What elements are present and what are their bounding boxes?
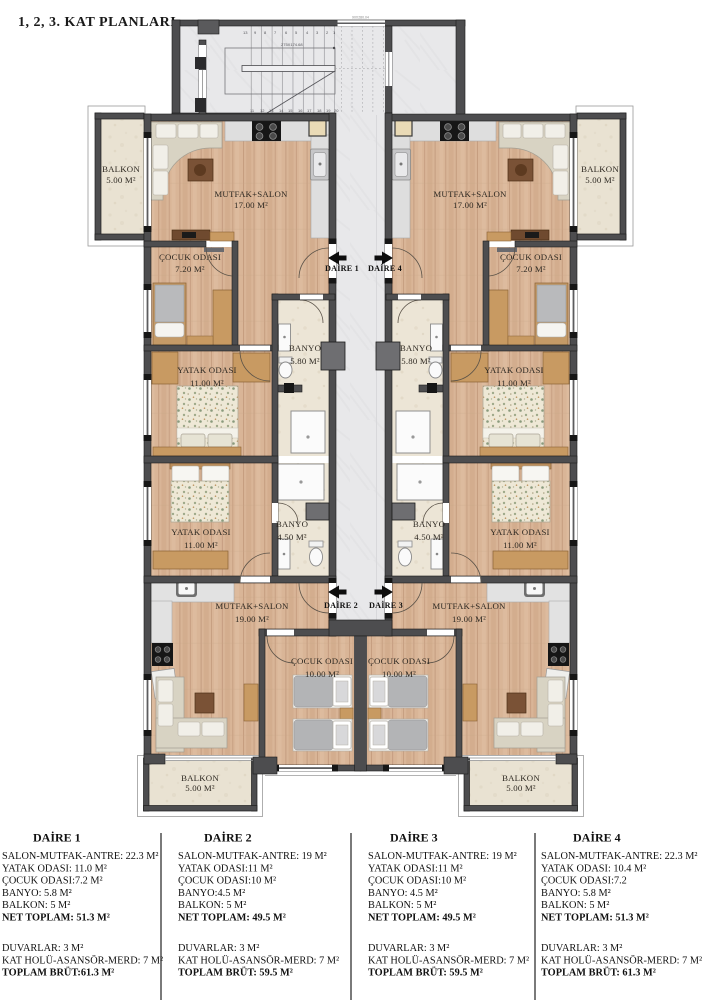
svg-text:13: 13 — [243, 30, 248, 35]
svg-text:90X280.04: 90X280.04 — [352, 16, 369, 20]
svg-text:TOPLAM BRÜT: 59.5 M²: TOPLAM BRÜT: 59.5 M² — [178, 966, 293, 979]
svg-text:ÇOCUK ODASI:7.2 M²: ÇOCUK ODASI:7.2 M² — [2, 876, 103, 887]
svg-text:DAİRE 2: DAİRE 2 — [204, 831, 252, 845]
svg-text:NET TOPLAM: 51.3 M²: NET TOPLAM: 51.3 M² — [2, 913, 110, 924]
svg-text:7.20 M²: 7.20 M² — [175, 264, 205, 274]
svg-text:11.00 M²: 11.00 M² — [503, 540, 537, 550]
svg-text:YATAK ODASI: 11.0 M²: YATAK ODASI: 11.0 M² — [2, 863, 107, 874]
svg-text:5.00 M²: 5.00 M² — [185, 783, 215, 793]
svg-text:ÇOCUK ODASI: ÇOCUK ODASI — [291, 656, 353, 666]
svg-text:DUVARLAR: 3 M²: DUVARLAR: 3 M² — [541, 943, 622, 954]
svg-text:SALON-MUTFAK-ANTRE: 19 M²: SALON-MUTFAK-ANTRE: 19 M² — [178, 851, 327, 862]
svg-text:DAİRE 4: DAİRE 4 — [368, 263, 402, 273]
svg-text:BANYO: BANYO — [400, 343, 432, 353]
svg-text:NET TOPLAM: 51.3 M²: NET TOPLAM: 51.3 M² — [541, 913, 649, 924]
svg-text:DAİRE 1: DAİRE 1 — [33, 831, 81, 845]
svg-text:16: 16 — [298, 108, 303, 113]
svg-text:MUTFAK+SALON: MUTFAK+SALON — [215, 601, 289, 611]
svg-text:BANYO: 5.8 M²: BANYO: 5.8 M² — [541, 888, 611, 899]
svg-text:BALKON: 5 M²: BALKON: 5 M² — [368, 900, 436, 911]
svg-text:TOPLAM BRÜT: 61.3 M²: TOPLAM BRÜT: 61.3 M² — [541, 966, 656, 979]
svg-text:DUVARLAR: 3 M²: DUVARLAR: 3 M² — [368, 943, 449, 954]
svg-text:YATAK ODASI:11 M²: YATAK ODASI:11 M² — [178, 863, 273, 874]
svg-text:SALON-MUTFAK-ANTRE: 22.3 M²: SALON-MUTFAK-ANTRE: 22.3 M² — [2, 851, 159, 862]
svg-text:TOPLAM BRÜT:61.3 M²: TOPLAM BRÜT:61.3 M² — [2, 966, 114, 979]
svg-text:17.00 M²: 17.00 M² — [453, 200, 487, 210]
svg-text:BANYO: BANYO — [413, 519, 445, 529]
svg-text:5.00 M²: 5.00 M² — [585, 175, 615, 185]
svg-text:5.80 M²: 5.80 M² — [290, 356, 320, 366]
svg-text:ÇOCUK ODASI:10 M²: ÇOCUK ODASI:10 M² — [368, 876, 466, 887]
svg-text:BALKON: 5 M²: BALKON: 5 M² — [178, 900, 246, 911]
svg-text:17: 17 — [307, 108, 312, 113]
svg-text:BALKON: 5 M²: BALKON: 5 M² — [541, 900, 609, 911]
svg-text:KAT HOLÜ-ASANSÖR-MERD: 7 M²: KAT HOLÜ-ASANSÖR-MERD: 7 M² — [178, 954, 339, 966]
svg-text:BALKON: BALKON — [502, 773, 540, 783]
svg-text:13: 13 — [269, 108, 274, 113]
svg-text:BANYO: 5.8 M²: BANYO: 5.8 M² — [2, 888, 72, 899]
svg-text:YATAK ODASI: YATAK ODASI — [484, 365, 543, 375]
svg-text:YATAK ODASI: YATAK ODASI — [177, 365, 236, 375]
svg-text:BALKON: BALKON — [181, 773, 219, 783]
svg-text:5.80 M²: 5.80 M² — [401, 356, 431, 366]
svg-text:7.20 M²: 7.20 M² — [516, 264, 546, 274]
svg-text:MUTFAK+SALON: MUTFAK+SALON — [433, 189, 507, 199]
svg-text:BANYO: BANYO — [276, 519, 308, 529]
svg-text:ÇOCUK ODASI:10 M²: ÇOCUK ODASI:10 M² — [178, 876, 276, 887]
svg-text:10.00 M²: 10.00 M² — [382, 669, 416, 679]
svg-text:SALON-MUTFAK-ANTRE: 19 M²: SALON-MUTFAK-ANTRE: 19 M² — [368, 851, 517, 862]
svg-text:MUTFAK+SALON: MUTFAK+SALON — [214, 189, 288, 199]
svg-text:ÇOCUK ODASI: ÇOCUK ODASI — [500, 252, 562, 262]
svg-text:18: 18 — [317, 108, 322, 113]
svg-text:ÇOCUK ODASI: ÇOCUK ODASI — [368, 656, 430, 666]
svg-text:YATAK ODASI: YATAK ODASI — [490, 527, 549, 537]
svg-text:BALKON: BALKON — [102, 164, 140, 174]
svg-text:KAT HOLÜ-ASANSÖR-MERD: 7 M²: KAT HOLÜ-ASANSÖR-MERD: 7 M² — [368, 954, 529, 966]
svg-text:275X174.68: 275X174.68 — [281, 42, 303, 47]
svg-text:11.00 M²: 11.00 M² — [190, 378, 224, 388]
svg-text:DAİRE 3: DAİRE 3 — [390, 831, 438, 845]
svg-text:DAİRE 1: DAİRE 1 — [325, 263, 359, 273]
svg-text:MUTFAK+SALON: MUTFAK+SALON — [432, 601, 506, 611]
svg-text:DAİRE 3: DAİRE 3 — [369, 600, 403, 610]
svg-text:ÇOCUK ODASI: ÇOCUK ODASI — [159, 252, 221, 262]
svg-text:BANYO: BANYO — [289, 343, 321, 353]
svg-text:KAT HOLÜ-ASANSÖR-MERD: 7 M²: KAT HOLÜ-ASANSÖR-MERD: 7 M² — [541, 954, 702, 966]
svg-text:SALON-MUTFAK-ANTRE: 22.3 M²: SALON-MUTFAK-ANTRE: 22.3 M² — [541, 851, 698, 862]
svg-text:NET TOPLAM: 49.5 M²: NET TOPLAM: 49.5 M² — [368, 913, 476, 924]
svg-text:11.00 M²: 11.00 M² — [184, 540, 218, 550]
svg-text:BANYO: 4.5 M²: BANYO: 4.5 M² — [368, 888, 438, 899]
svg-text:11.00 M²: 11.00 M² — [497, 378, 531, 388]
svg-text:1, 2, 3. KAT PLANLARI: 1, 2, 3. KAT PLANLARI — [18, 15, 176, 30]
svg-text:DAİRE 4: DAİRE 4 — [573, 831, 621, 845]
svg-text:19.00 M²: 19.00 M² — [452, 614, 486, 624]
svg-text:10.00 M²: 10.00 M² — [305, 669, 339, 679]
svg-text:4.50 M²: 4.50 M² — [414, 532, 444, 542]
svg-text:20: 20 — [334, 108, 339, 113]
svg-text:14: 14 — [279, 108, 284, 113]
svg-text:DAİRE 2: DAİRE 2 — [324, 600, 358, 610]
svg-text:YATAK ODASI:11 M²: YATAK ODASI:11 M² — [368, 863, 463, 874]
svg-text:5.00 M²: 5.00 M² — [106, 175, 136, 185]
svg-text:15: 15 — [288, 108, 293, 113]
svg-text:DUVARLAR: 3 M²: DUVARLAR: 3 M² — [178, 943, 259, 954]
svg-text:YATAK ODASI: YATAK ODASI — [171, 527, 230, 537]
svg-text:DUVARLAR: 3 M²: DUVARLAR: 3 M² — [2, 943, 83, 954]
svg-text:TOPLAM BRÜT: 59.5 M²: TOPLAM BRÜT: 59.5 M² — [368, 966, 483, 979]
svg-text:BALKON: 5 M²: BALKON: 5 M² — [2, 900, 70, 911]
svg-text:19.00 M²: 19.00 M² — [235, 614, 269, 624]
svg-text:BANYO:4.5 M²: BANYO:4.5 M² — [178, 888, 245, 899]
svg-text:KAT HOLÜ-ASANSÖR-MERD: 7 M²: KAT HOLÜ-ASANSÖR-MERD: 7 M² — [2, 954, 163, 966]
svg-text:19: 19 — [326, 108, 331, 113]
svg-text:NET TOPLAM: 49.5 M²: NET TOPLAM: 49.5 M² — [178, 913, 286, 924]
svg-text:4.50 M²: 4.50 M² — [277, 532, 307, 542]
svg-text:12: 12 — [260, 108, 265, 113]
svg-text:YATAK ODASI: 10.4 M²: YATAK ODASI: 10.4 M² — [541, 863, 646, 874]
svg-text:BALKON: BALKON — [581, 164, 619, 174]
svg-text:5.00 M²: 5.00 M² — [506, 783, 536, 793]
svg-text:ÇOCUK ODASI:7.2: ÇOCUK ODASI:7.2 — [541, 876, 627, 887]
svg-text:17.00 M²: 17.00 M² — [234, 200, 268, 210]
